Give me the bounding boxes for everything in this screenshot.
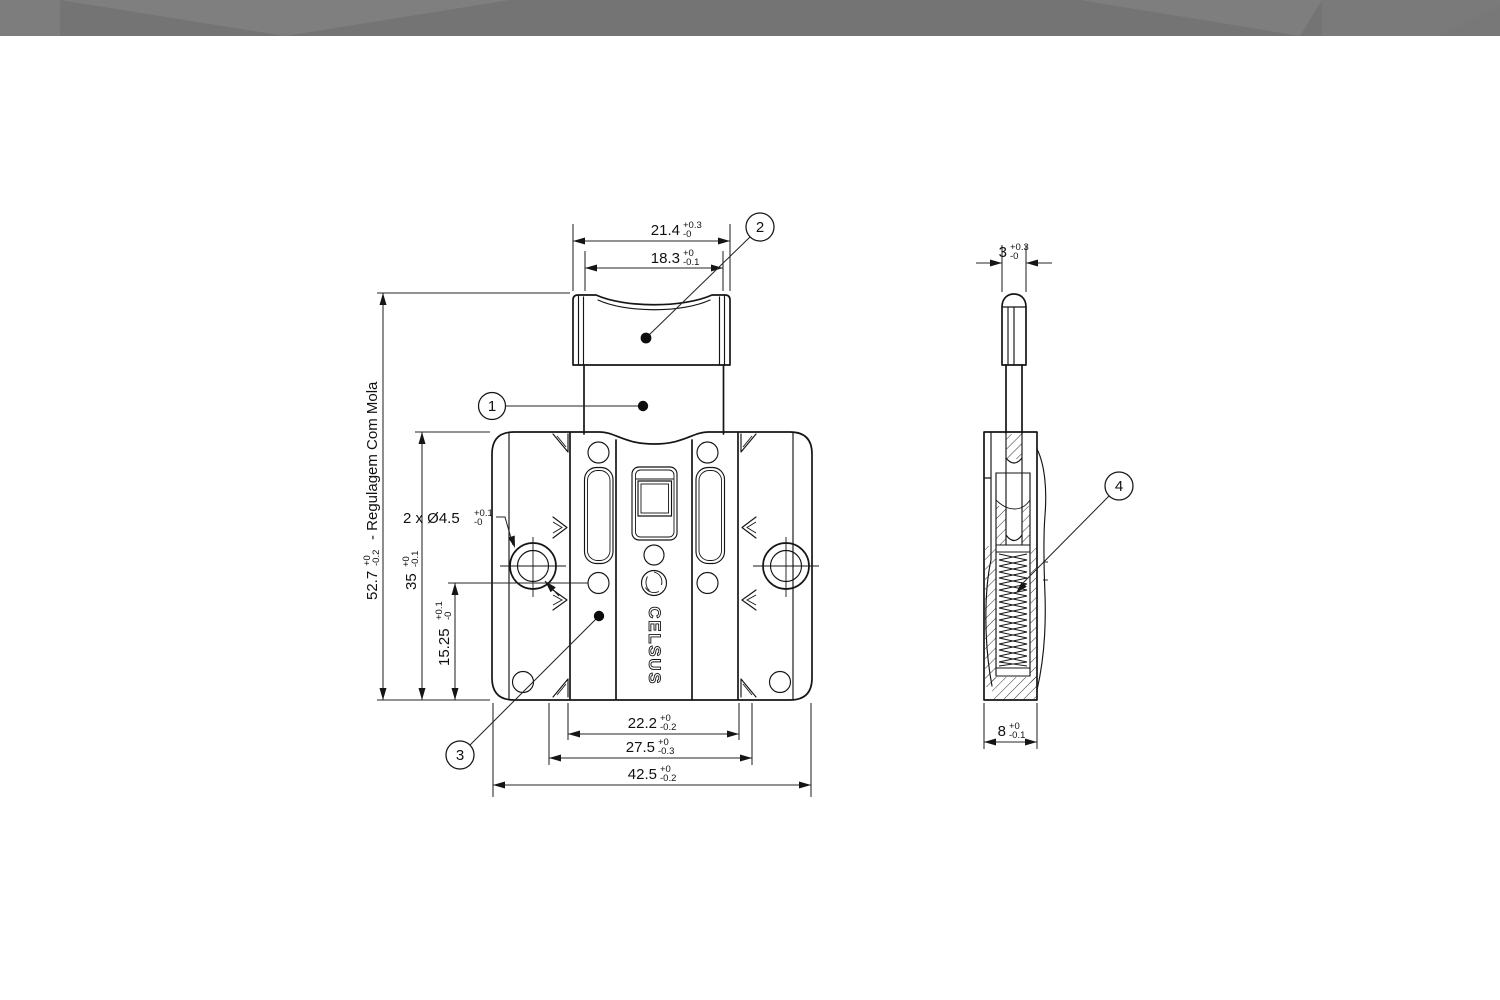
dim-top-inner-value: 18.3 [651, 250, 680, 267]
section-hatch [992, 677, 1037, 699]
mount-hole-left [500, 537, 566, 597]
rail-hole [588, 573, 609, 594]
front-button-cap [573, 295, 730, 365]
dim-bottom-inner-value: 22.2 [628, 715, 657, 732]
dim-bottom-inner-tol-lower: -0.2 [660, 722, 676, 733]
mount-hole-right [753, 537, 819, 597]
swirl-logo-icon [642, 571, 667, 596]
side-view: 3 +0.3 -0 8 +0 -0.1 4 [976, 242, 1133, 749]
dim-bottom-mid-value: 27.5 [626, 739, 655, 756]
corner-hole [770, 672, 791, 693]
dim-bottom-mid-tol-lower: -0.3 [658, 746, 674, 757]
front-stem [584, 365, 724, 434]
dim-hole-diameter-tol-lower: -0 [474, 517, 482, 528]
dim-top-inner-tol-lower: -0.1 [683, 257, 699, 268]
rail-hole [697, 442, 718, 463]
side-body [984, 432, 1048, 700]
dim-hole-to-bottom-value: 15.25 [436, 628, 453, 666]
balloon-2-label: 2 [756, 219, 764, 236]
balloon-1-label: 1 [488, 398, 496, 415]
dim-side-depth-tol-lower: -0.1 [1009, 730, 1025, 741]
header-facet [0, 0, 60, 36]
coil-spring [999, 554, 1027, 666]
dim-overall-height-tol-lower: -0.2 [371, 550, 382, 566]
balloon-3-label: 3 [456, 747, 464, 764]
dim-overall-height-note: - Regulagem Com Mola [364, 381, 381, 540]
section-hatch [985, 546, 996, 687]
center-hole [644, 545, 664, 565]
section-hatch [1006, 434, 1022, 459]
latch-window [632, 467, 677, 540]
corner-hole [513, 672, 534, 693]
dim-side-depth-value: 8 [998, 723, 1006, 740]
dim-overall-height-value: 52.7 [364, 571, 381, 600]
dim-body-height-tol-lower: -0.1 [410, 551, 421, 567]
dim-top-inner: 18.3 +0 -0.1 [585, 248, 723, 291]
drawing-canvas: CELSUS [0, 0, 1500, 1000]
front-body: CELSUS [492, 432, 819, 700]
front-view: CELSUS [362, 213, 819, 797]
section-hatch [996, 506, 1006, 545]
header-banner [0, 0, 1500, 36]
dim-top-outer-tol-lower: -0 [683, 229, 691, 240]
dim-overall-height: 52.7 +0 -0.2 - Regulagem Com Mola [362, 293, 570, 700]
balloon-3: 3 [446, 611, 604, 769]
gussets-right [741, 434, 756, 697]
balloon-4-label: 4 [1115, 478, 1123, 495]
rail-slot [696, 468, 725, 564]
dim-side-depth: 8 +0 -0.1 [984, 703, 1037, 749]
rail-hole [588, 442, 609, 463]
dim-side-width: 3 +0.3 -0 [976, 242, 1052, 292]
dim-side-width-tol-lower: -0 [1010, 251, 1018, 262]
dim-top-outer-value: 21.4 [651, 222, 680, 239]
dim-hole-to-bottom-tol-lower: -0 [443, 612, 454, 620]
dim-side-width-value: 3 [999, 244, 1007, 261]
balloon-1: 1 [479, 393, 649, 420]
rail-slot [585, 468, 614, 564]
side-button-cap [1002, 294, 1026, 365]
dim-hole-diameter-value: 2 x Ø4.5 [403, 510, 460, 527]
celsus-logo-text: CELSUS [645, 607, 663, 686]
section-hatch [1031, 546, 1037, 687]
dim-bottom-inner: 22.2 +0 -0.2 [568, 703, 739, 740]
dim-bottom-outer-value: 42.5 [628, 766, 657, 783]
dim-bottom-outer-tol-lower: -0.2 [660, 773, 676, 784]
dim-body-height-value: 35 [403, 573, 420, 590]
rail-hole [697, 573, 718, 594]
section-hatch [1022, 506, 1030, 545]
